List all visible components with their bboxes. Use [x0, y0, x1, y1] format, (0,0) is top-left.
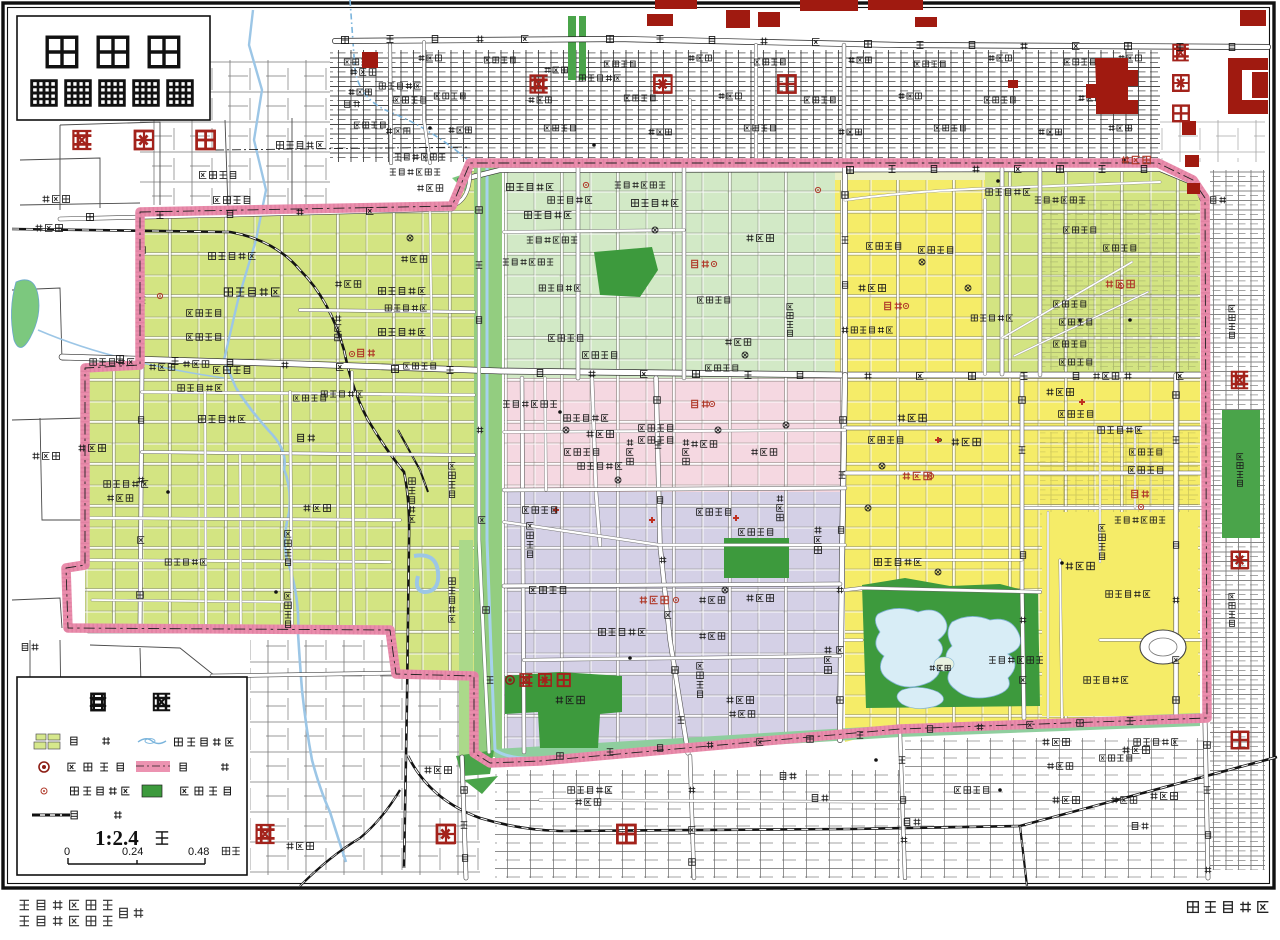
svg-text:0: 0	[64, 846, 70, 858]
svg-text:0.48: 0.48	[188, 846, 209, 858]
svg-text:0.24: 0.24	[122, 846, 143, 858]
